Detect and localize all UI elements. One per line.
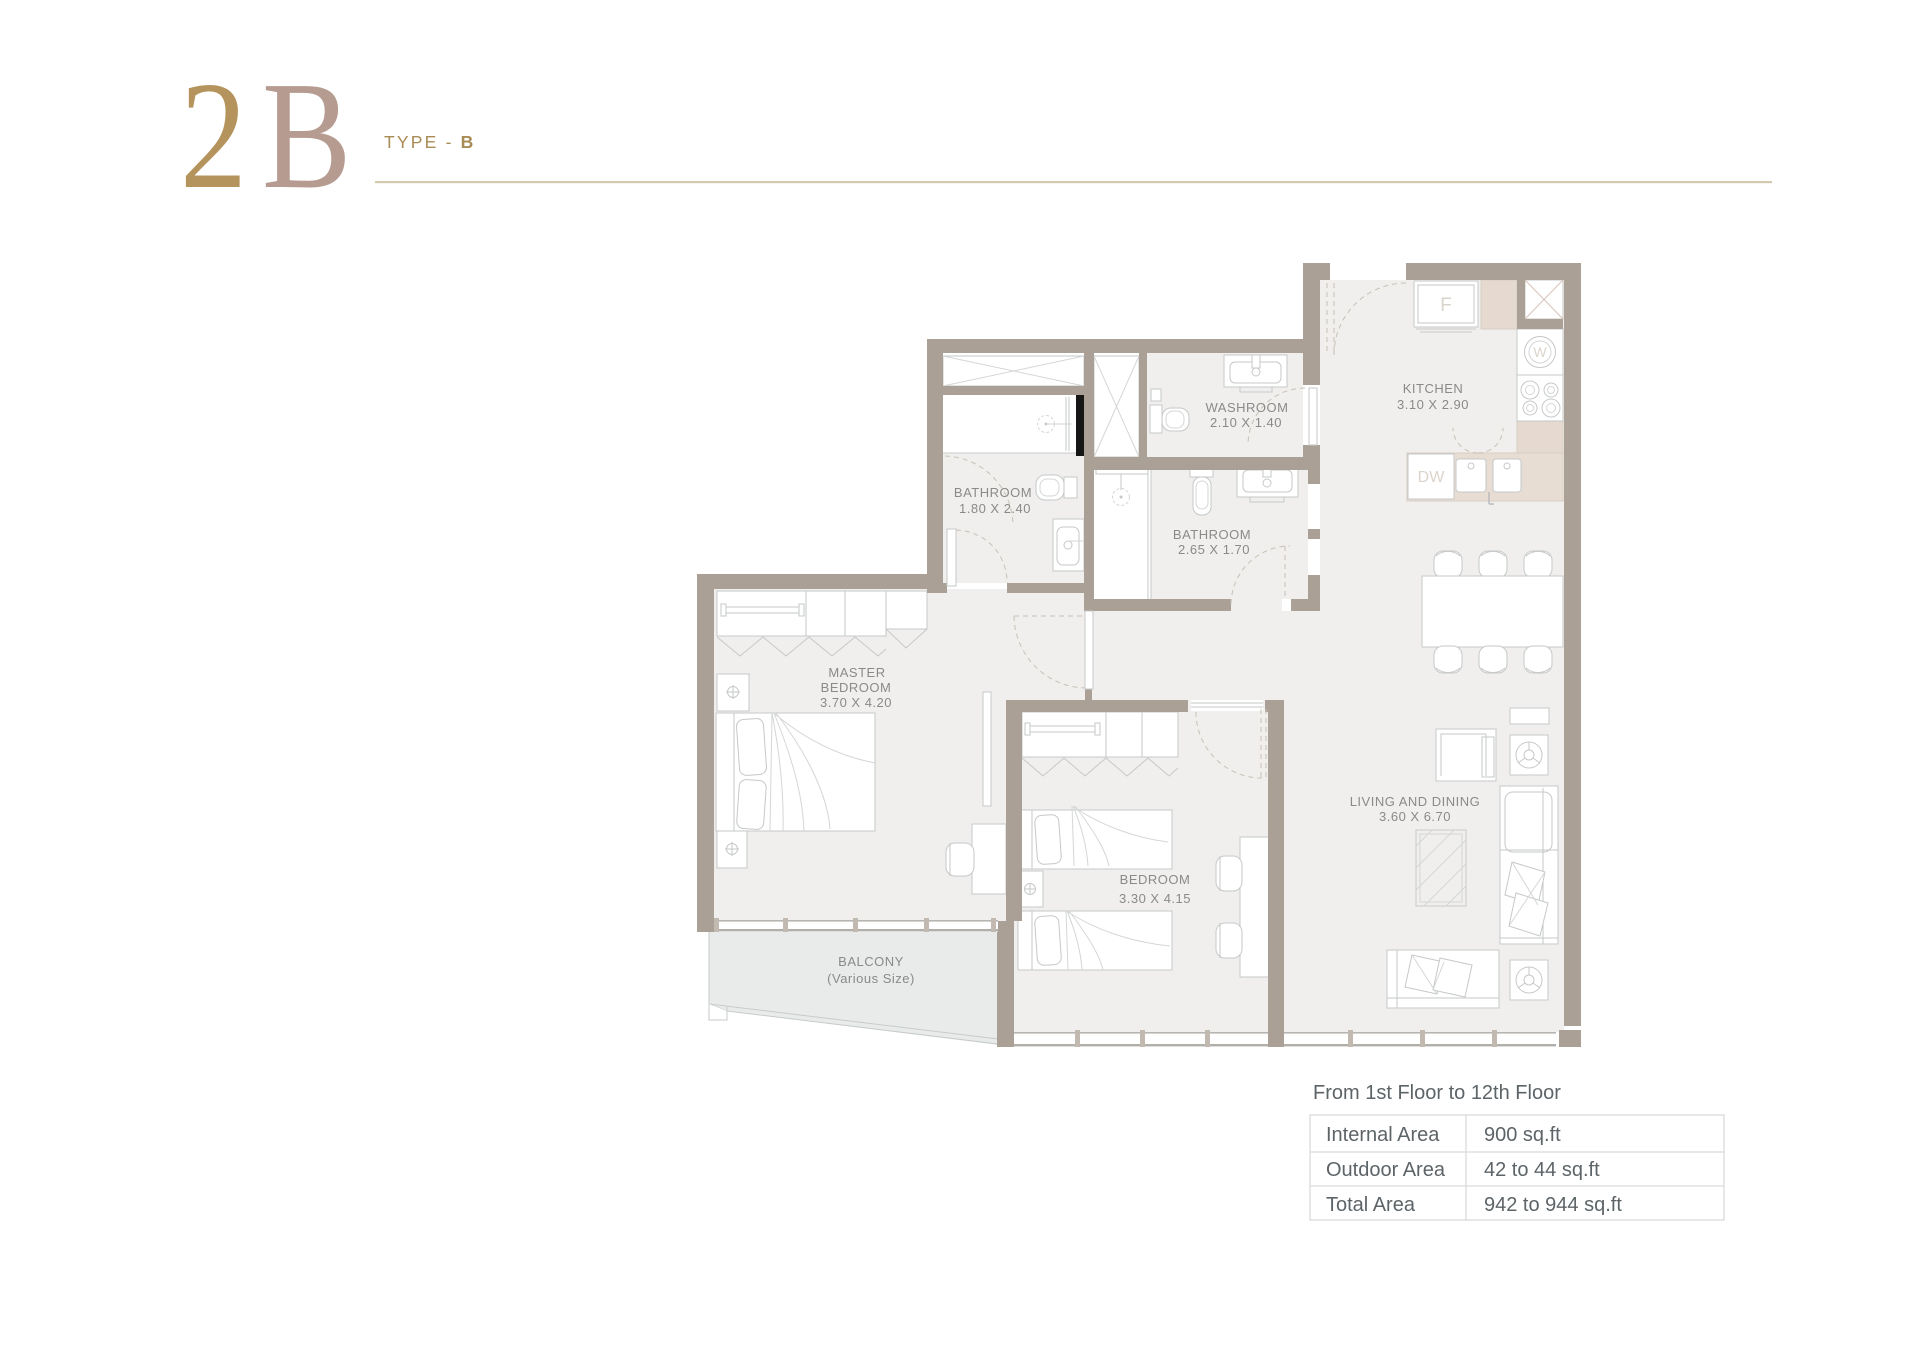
- svg-text:2.10 X 1.40: 2.10 X 1.40: [1210, 415, 1282, 430]
- svg-text:KITCHEN: KITCHEN: [1403, 381, 1464, 396]
- svg-text:Internal Area: Internal Area: [1326, 1124, 1440, 1146]
- svg-text:Total Area: Total Area: [1326, 1194, 1416, 1216]
- svg-text:Outdoor Area: Outdoor Area: [1326, 1159, 1446, 1181]
- svg-text:BEDROOM: BEDROOM: [1120, 872, 1191, 887]
- svg-text:2.65 X 1.70: 2.65 X 1.70: [1178, 542, 1250, 557]
- svg-text:900 sq.ft: 900 sq.ft: [1484, 1124, 1561, 1146]
- svg-text:DW: DW: [1418, 469, 1446, 486]
- svg-text:(Various Size): (Various Size): [827, 971, 915, 986]
- svg-text:BATHROOM: BATHROOM: [1173, 527, 1251, 542]
- svg-text:942 to 944 sq.ft: 942 to 944 sq.ft: [1484, 1194, 1622, 1216]
- svg-text:From 1st Floor to 12th Floor: From 1st Floor to 12th Floor: [1313, 1082, 1561, 1104]
- svg-text:TYPE - B: TYPE - B: [384, 132, 476, 152]
- svg-text:3.70 X 4.20: 3.70 X 4.20: [820, 695, 892, 710]
- svg-text:LIVING AND DINING: LIVING AND DINING: [1350, 794, 1481, 809]
- svg-text:MASTER: MASTER: [828, 665, 885, 680]
- svg-text:2: 2: [180, 50, 247, 221]
- svg-text:3.10 X 2.90: 3.10 X 2.90: [1397, 397, 1469, 412]
- svg-text:W: W: [1533, 344, 1547, 360]
- svg-text:WASHROOM: WASHROOM: [1206, 400, 1289, 415]
- svg-text:1.80 X 2.40: 1.80 X 2.40: [959, 501, 1031, 516]
- svg-text:F: F: [1440, 295, 1452, 316]
- svg-text:3.30 X 4.15: 3.30 X 4.15: [1119, 891, 1191, 906]
- svg-text:3.60 X 6.70: 3.60 X 6.70: [1379, 809, 1451, 824]
- svg-text:BEDROOM: BEDROOM: [821, 680, 892, 695]
- svg-text:BATHROOM: BATHROOM: [954, 485, 1032, 500]
- svg-text:B: B: [262, 50, 351, 221]
- svg-text:42 to 44 sq.ft: 42 to 44 sq.ft: [1484, 1159, 1600, 1181]
- svg-text:BALCONY: BALCONY: [838, 954, 904, 969]
